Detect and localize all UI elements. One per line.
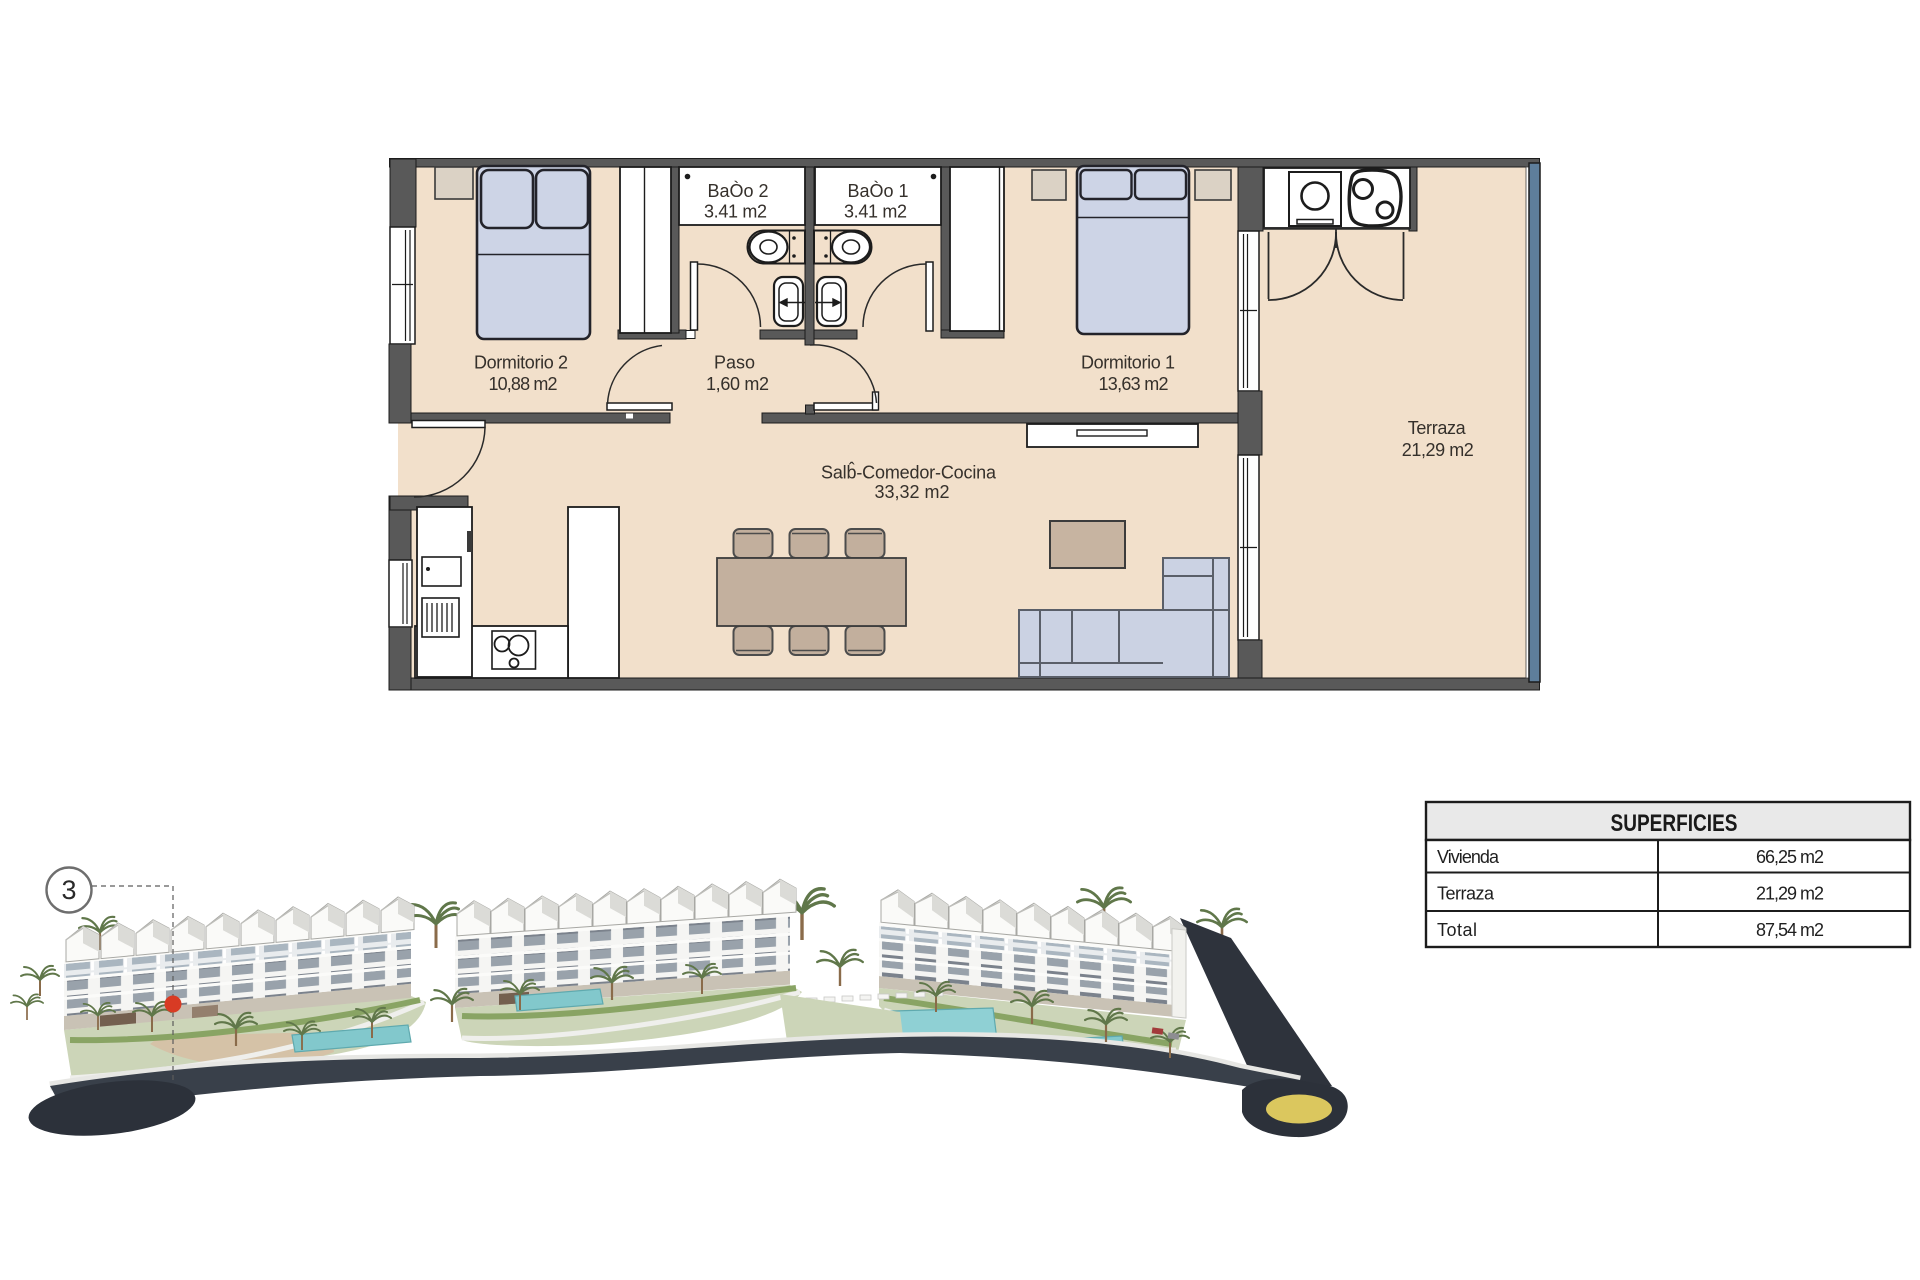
svg-text:1,60 m2: 1,60 m2 xyxy=(706,374,769,394)
svg-text:Paso: Paso xyxy=(714,353,755,373)
svg-text:3: 3 xyxy=(61,875,76,905)
svg-text:Salb̂-Comedor-Cocina: Salb̂-Comedor-Cocina xyxy=(821,462,997,483)
svg-text:21,29 m2: 21,29 m2 xyxy=(1402,440,1474,460)
svg-text:3.41 m2: 3.41 m2 xyxy=(704,202,767,222)
svg-text:Total: Total xyxy=(1437,920,1477,940)
svg-text:3.41 m2: 3.41 m2 xyxy=(844,202,907,222)
svg-text:66,25 m2: 66,25 m2 xyxy=(1756,847,1824,867)
svg-text:Dormitorio 1: Dormitorio 1 xyxy=(1081,353,1175,373)
svg-text:87,54 m2: 87,54 m2 xyxy=(1756,920,1824,940)
svg-text:10,88 m2: 10,88 m2 xyxy=(489,374,558,394)
svg-text:Vivienda: Vivienda xyxy=(1437,847,1500,867)
svg-text:21,29 m2: 21,29 m2 xyxy=(1756,884,1824,904)
svg-text:Terraza: Terraza xyxy=(1437,884,1495,904)
svg-text:Terraza: Terraza xyxy=(1408,418,1467,438)
svg-text:BaÒo 1: BaÒo 1 xyxy=(848,180,909,201)
svg-text:BaÒo 2: BaÒo 2 xyxy=(708,180,769,201)
svg-text:33,32 m2: 33,32 m2 xyxy=(875,482,950,502)
svg-text:Dormitorio 2: Dormitorio 2 xyxy=(474,353,568,373)
svg-text:SUPERFICIES: SUPERFICIES xyxy=(1611,810,1738,837)
svg-text:13,63 m2: 13,63 m2 xyxy=(1099,374,1169,394)
